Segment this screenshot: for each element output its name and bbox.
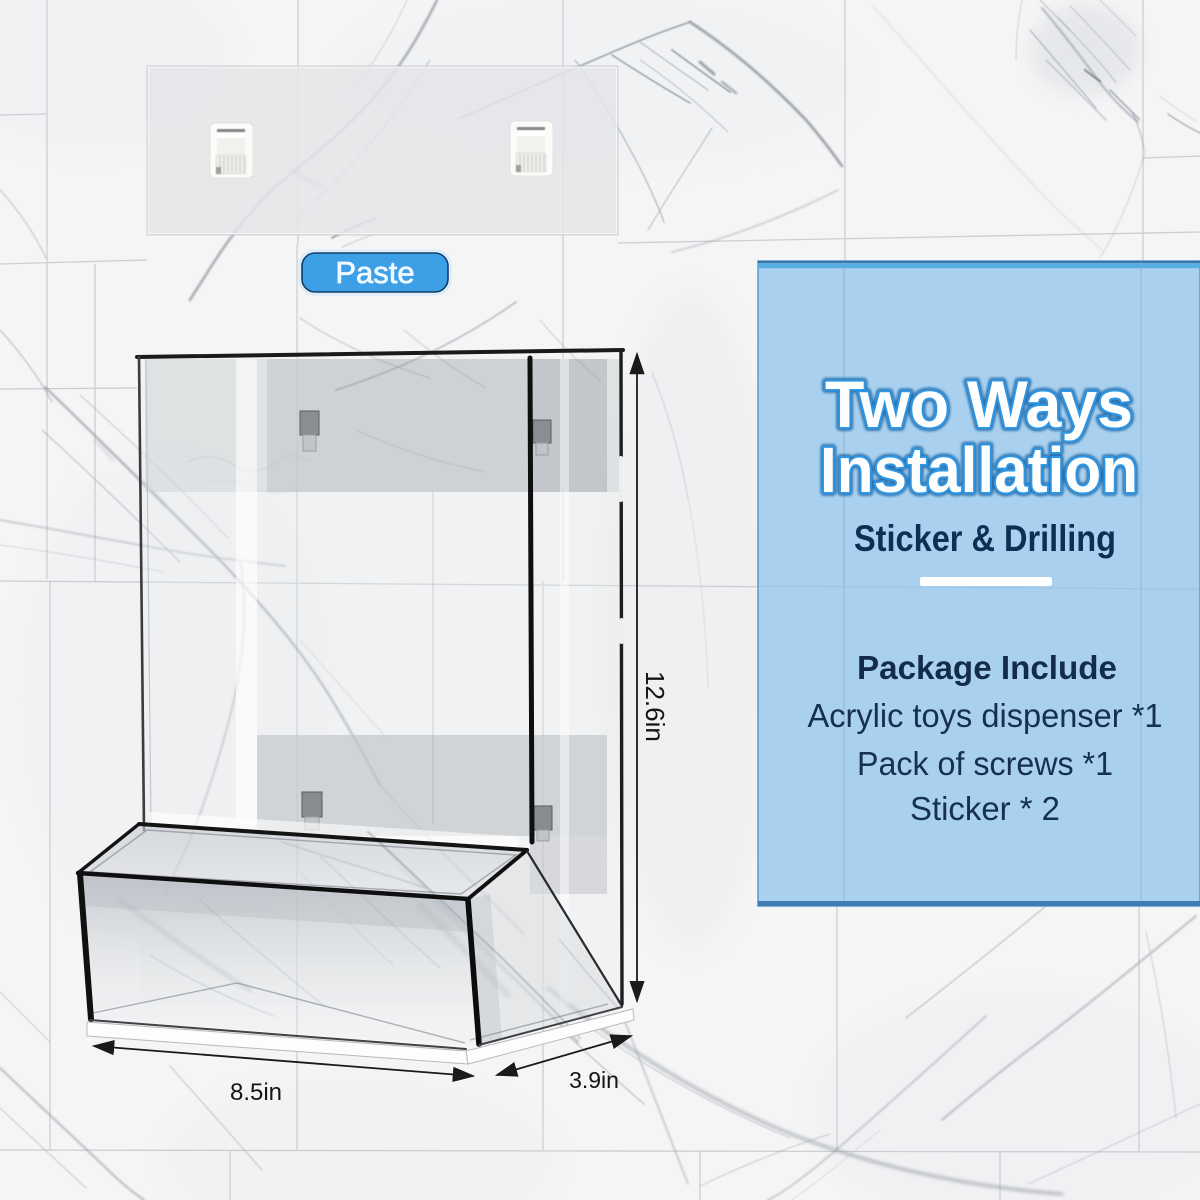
svg-text:Package Include: Package Include bbox=[857, 650, 1117, 687]
svg-text:Sticker & Drilling: Sticker & Drilling bbox=[854, 518, 1116, 559]
svg-text:Installation: Installation bbox=[820, 434, 1138, 506]
svg-text:3.9in: 3.9in bbox=[569, 1067, 619, 1093]
svg-text:Acrylic toys dispenser *1: Acrylic toys dispenser *1 bbox=[808, 698, 1163, 735]
svg-text:Pack of screws *1: Pack of screws *1 bbox=[857, 746, 1113, 783]
svg-text:Two Ways: Two Ways bbox=[825, 368, 1133, 441]
svg-text:Sticker * 2: Sticker * 2 bbox=[910, 791, 1060, 828]
svg-text:Paste: Paste bbox=[335, 255, 414, 290]
svg-text:8.5in: 8.5in bbox=[230, 1079, 282, 1106]
svg-text:12.6in: 12.6in bbox=[640, 671, 670, 742]
